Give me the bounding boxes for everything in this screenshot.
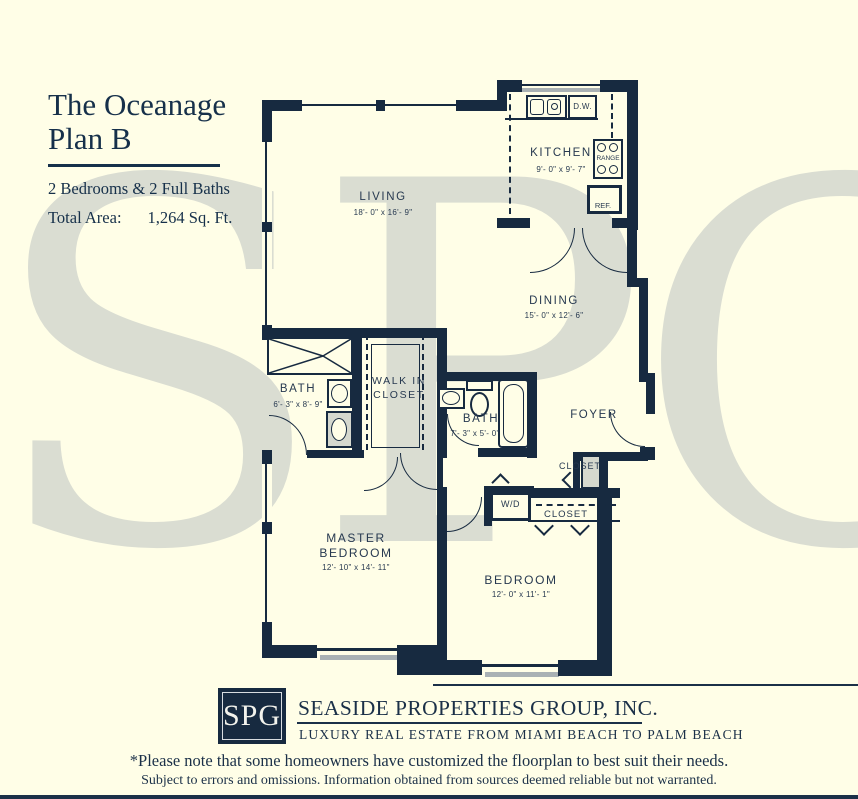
floorplan-page: SPG The Oceanage Plan B 2 Bedrooms & 2 F… [0,0,858,799]
company-name: SEASIDE PROPERTIES GROUP, INC. [298,696,658,721]
spg-logo-text: SPG [218,688,286,744]
disclaimer-note: *Please note that some homeowners have c… [0,751,858,771]
footer: SPG SEASIDE PROPERTIES GROUP, INC. LUXUR… [0,0,858,799]
spg-logo: SPG [218,688,286,744]
footer-top-rule [433,684,858,686]
bottom-border [0,795,858,799]
legal-note: Subject to errors and omissions. Informa… [0,773,858,789]
company-underline [297,722,642,724]
company-tagline: LUXURY REAL ESTATE FROM MIAMI BEACH TO P… [299,727,744,743]
